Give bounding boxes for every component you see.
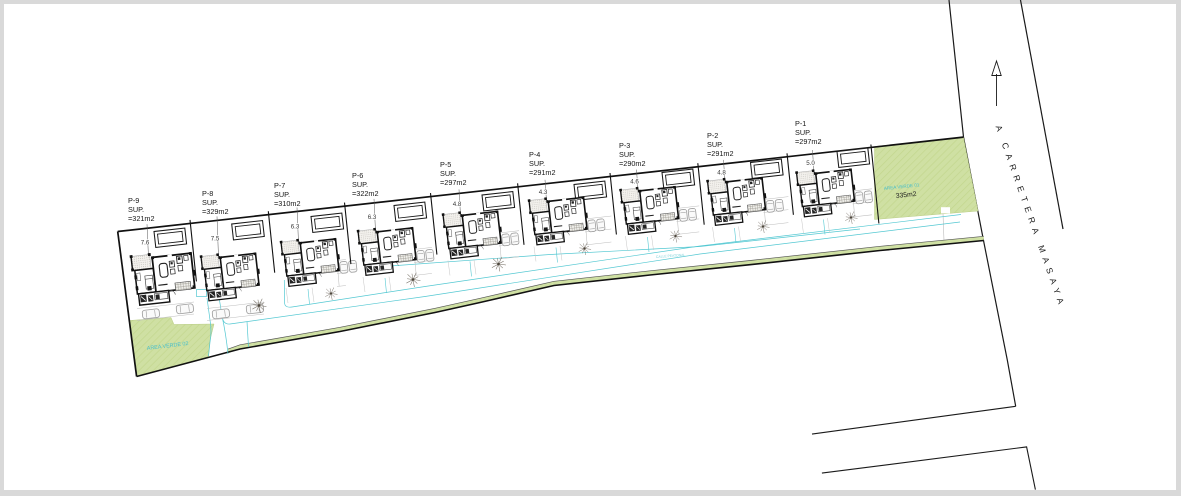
svg-text:SUP.: SUP. xyxy=(128,205,144,214)
svg-text:P-6: P-6 xyxy=(352,171,363,180)
svg-text:4.8: 4.8 xyxy=(453,201,462,208)
svg-text:P-7: P-7 xyxy=(274,181,285,190)
svg-text:P-4: P-4 xyxy=(529,150,540,159)
svg-text:SUP.: SUP. xyxy=(202,198,218,207)
svg-text:P-1: P-1 xyxy=(795,119,806,128)
svg-text:=297m2: =297m2 xyxy=(795,137,822,146)
svg-text:4.6: 4.6 xyxy=(630,179,639,186)
svg-text:SUP.: SUP. xyxy=(529,159,545,168)
svg-text:=321m2: =321m2 xyxy=(128,214,155,223)
svg-text:6.3: 6.3 xyxy=(291,224,300,231)
svg-text:=310m2: =310m2 xyxy=(274,199,301,208)
svg-text:4.3: 4.3 xyxy=(539,189,548,196)
svg-text:SUP.: SUP. xyxy=(795,128,811,137)
svg-text:P-2: P-2 xyxy=(707,131,718,140)
svg-text:4.8: 4.8 xyxy=(717,169,726,176)
svg-text:P-3: P-3 xyxy=(619,141,630,150)
svg-text:=329m2: =329m2 xyxy=(202,207,229,216)
svg-text:6.3: 6.3 xyxy=(368,214,377,221)
svg-text:=297m2: =297m2 xyxy=(440,178,467,187)
svg-text:SUP.: SUP. xyxy=(707,140,723,149)
svg-text:7.5: 7.5 xyxy=(211,235,220,242)
svg-text:5.0: 5.0 xyxy=(806,160,815,167)
svg-text:SUP.: SUP. xyxy=(274,190,290,199)
svg-text:P-5: P-5 xyxy=(440,160,451,169)
svg-text:=291m2: =291m2 xyxy=(707,149,734,158)
svg-text:SUP.: SUP. xyxy=(440,169,456,178)
svg-text:SUP.: SUP. xyxy=(619,150,635,159)
svg-text:=291m2: =291m2 xyxy=(529,168,556,177)
svg-text:P-9: P-9 xyxy=(128,196,139,205)
svg-text:P-8: P-8 xyxy=(202,189,213,198)
svg-text:=290m2: =290m2 xyxy=(619,159,646,168)
svg-text:7.6: 7.6 xyxy=(141,239,150,246)
svg-text:SUP.: SUP. xyxy=(352,180,368,189)
svg-text:=322m2: =322m2 xyxy=(352,189,379,198)
